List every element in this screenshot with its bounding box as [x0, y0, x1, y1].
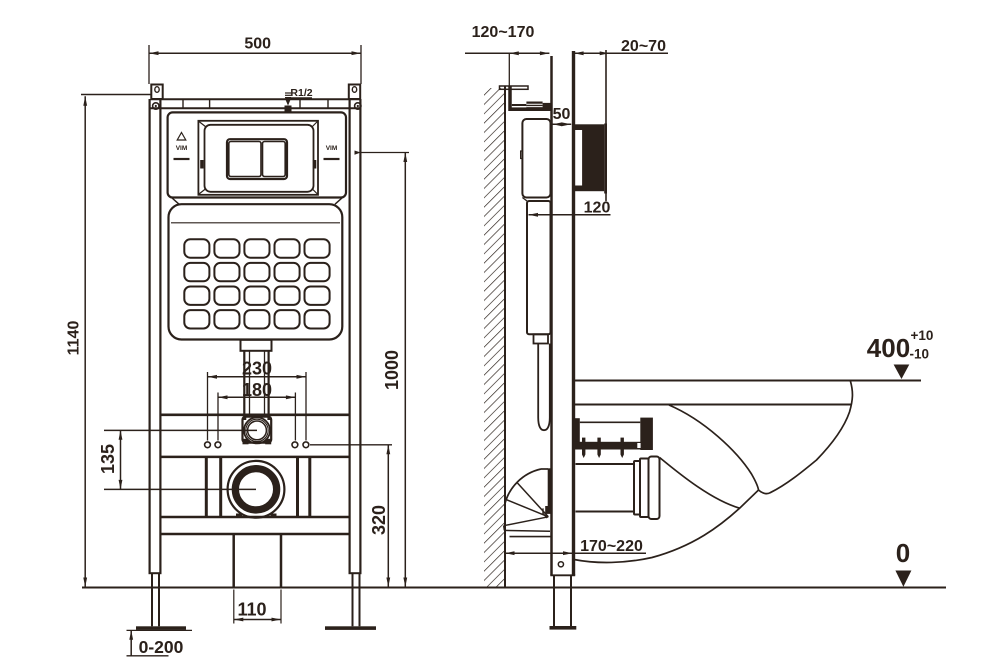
svg-text:20~70: 20~70 — [621, 38, 666, 55]
svg-text:120: 120 — [584, 200, 611, 217]
svg-text:VIM: VIM — [326, 145, 338, 152]
svg-text:230: 230 — [242, 359, 272, 379]
svg-text:R1/2: R1/2 — [290, 87, 312, 99]
svg-text:110: 110 — [237, 600, 266, 620]
svg-text:0: 0 — [896, 538, 910, 568]
svg-text:1140: 1140 — [66, 321, 83, 356]
svg-text:-10: -10 — [910, 346, 930, 361]
svg-text:120~170: 120~170 — [472, 24, 535, 41]
svg-text:135: 135 — [98, 444, 118, 474]
svg-text:VIM: VIM — [176, 145, 188, 152]
svg-text:50: 50 — [553, 106, 571, 123]
svg-text:320: 320 — [369, 505, 389, 535]
svg-text:0-200: 0-200 — [139, 637, 184, 657]
svg-text:500: 500 — [244, 36, 271, 53]
svg-text:1000: 1000 — [382, 350, 402, 390]
svg-text:+10: +10 — [911, 328, 934, 343]
svg-text:400: 400 — [867, 333, 910, 363]
